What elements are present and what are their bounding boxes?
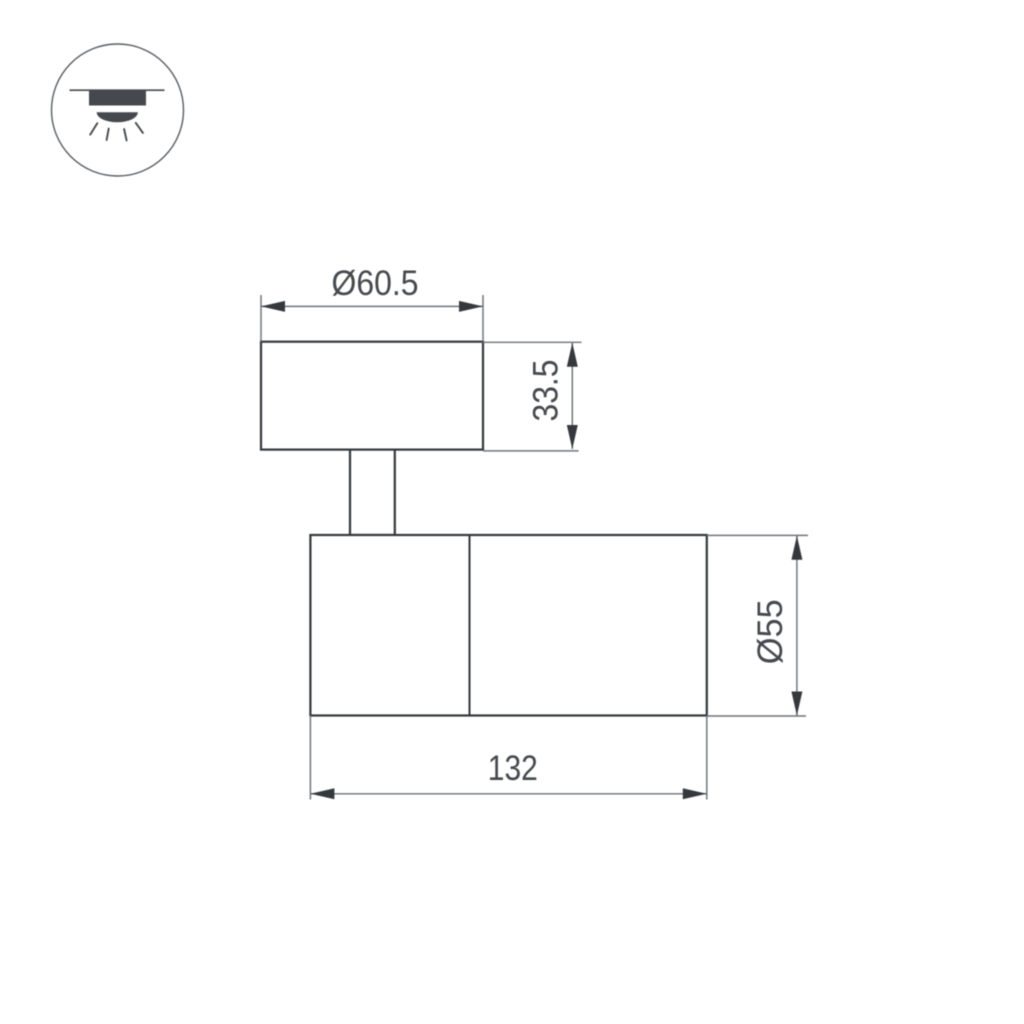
svg-text:Ø55: Ø55 xyxy=(751,599,790,664)
svg-text:132: 132 xyxy=(488,749,538,788)
svg-text:Ø60.5: Ø60.5 xyxy=(332,264,419,303)
svg-text:33.5: 33.5 xyxy=(527,360,566,422)
